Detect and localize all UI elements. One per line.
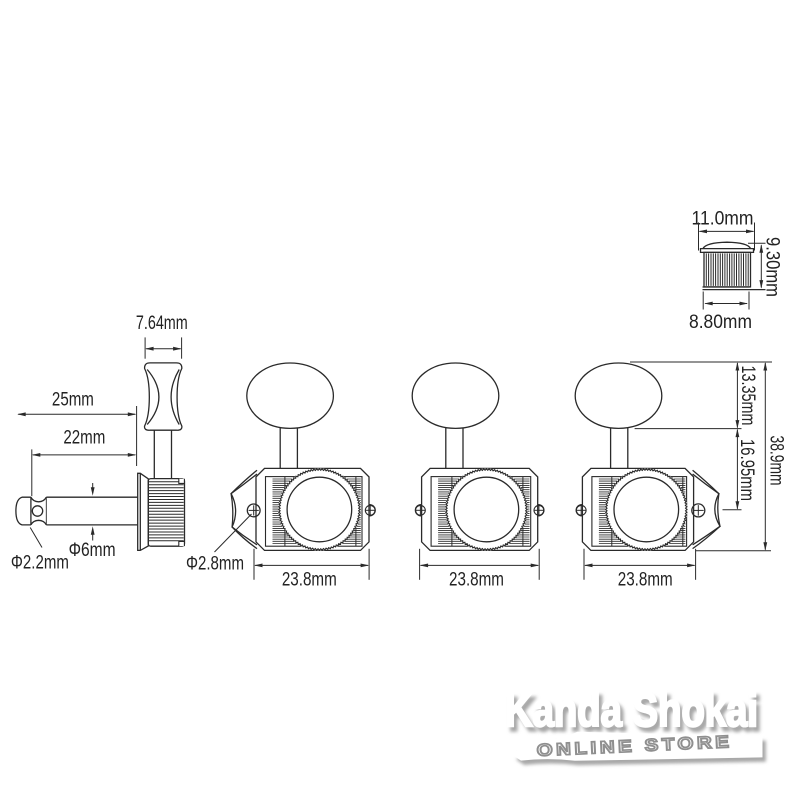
svg-text:Φ2.2mm: Φ2.2mm [11,551,69,573]
svg-text:16.95mm: 16.95mm [737,439,759,501]
svg-text:23.8mm: 23.8mm [618,568,673,590]
svg-text:23.8mm: 23.8mm [449,568,504,590]
svg-text:13.35mm: 13.35mm [737,366,760,426]
svg-text:11.0mm: 11.0mm [692,207,754,229]
svg-text:Φ2.8mm: Φ2.8mm [186,552,244,574]
svg-text:Φ6mm: Φ6mm [69,538,116,560]
svg-text:22mm: 22mm [63,426,105,448]
svg-text:23.8mm: 23.8mm [282,568,337,590]
svg-text:25mm: 25mm [52,388,94,410]
svg-text:38.9mm: 38.9mm [766,436,788,486]
svg-text:7.64mm: 7.64mm [136,311,188,334]
svg-text:Kanda Shokai: Kanda Shokai [505,683,758,736]
svg-text:9.30mm: 9.30mm [762,237,784,297]
svg-text:8.80mm: 8.80mm [689,310,752,332]
